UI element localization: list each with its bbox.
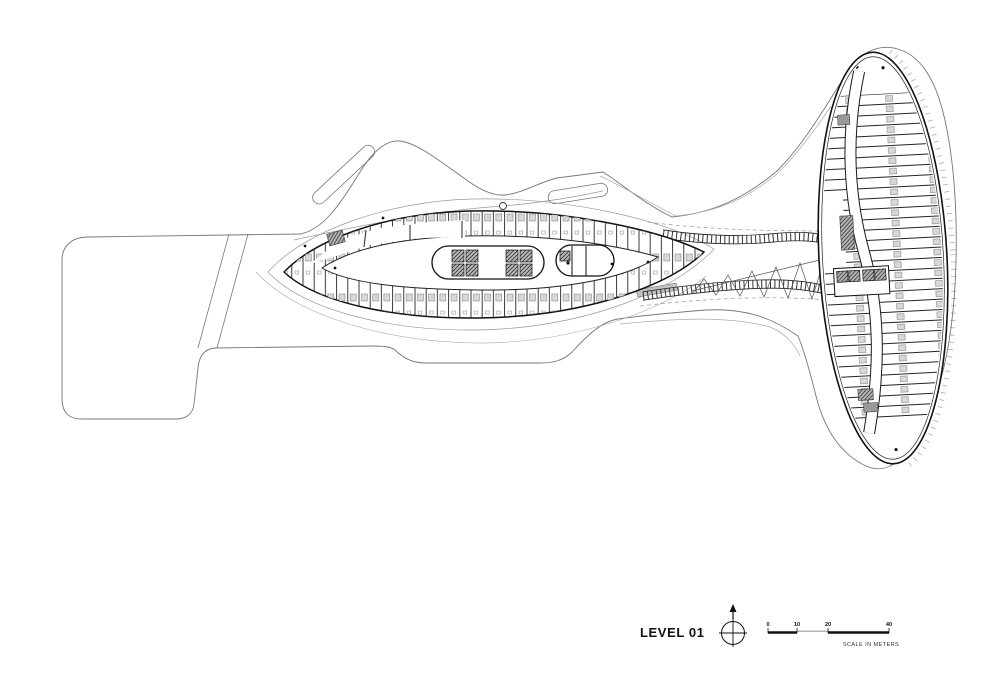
tower-core bbox=[833, 266, 889, 297]
tower-service-block-top bbox=[837, 115, 850, 126]
tower-ellipse bbox=[794, 41, 976, 475]
scale-tick-label-2: 20 bbox=[825, 622, 831, 628]
tower-stair-block-lower bbox=[858, 389, 874, 401]
lens-core bbox=[432, 245, 614, 279]
north-arrowhead bbox=[730, 604, 737, 612]
level-title: LEVEL 01 bbox=[640, 625, 705, 640]
scale-tick-label-0: 0 bbox=[766, 622, 769, 628]
scale-bar: 0 10 20 40 SCALE IN METERS bbox=[766, 622, 899, 648]
lens-building bbox=[284, 211, 704, 318]
floor-plan-drawing: LEVEL 01 0 10 20 40 SCALE IN METERS bbox=[0, 0, 993, 682]
tower-service-block-bottom bbox=[864, 402, 878, 412]
bridge-guide-dashed-lower bbox=[640, 298, 830, 306]
scale-caption: SCALE IN METERS bbox=[843, 642, 899, 648]
skylight-slot-right bbox=[547, 182, 608, 204]
floor-plan-sheet: LEVEL 01 0 10 20 40 SCALE IN METERS bbox=[0, 0, 993, 682]
canopy-inner-line-upper bbox=[600, 106, 831, 216]
canopy-inner-line-lower bbox=[620, 319, 800, 356]
truss-zigzag bbox=[692, 260, 832, 299]
footer: LEVEL 01 0 10 20 40 SCALE IN METERS bbox=[640, 604, 899, 648]
core-pill-right-shaft bbox=[560, 251, 570, 261]
north-arrow bbox=[719, 604, 747, 647]
roof-vent-circle bbox=[500, 203, 507, 210]
scale-tick-label-3: 40 bbox=[886, 622, 892, 628]
scale-tick-label-1: 10 bbox=[794, 622, 800, 628]
bridge-guide-dashed-upper bbox=[648, 222, 830, 231]
left-wing-fold-lines bbox=[198, 234, 248, 348]
tower-stair-block-upper bbox=[840, 216, 855, 251]
